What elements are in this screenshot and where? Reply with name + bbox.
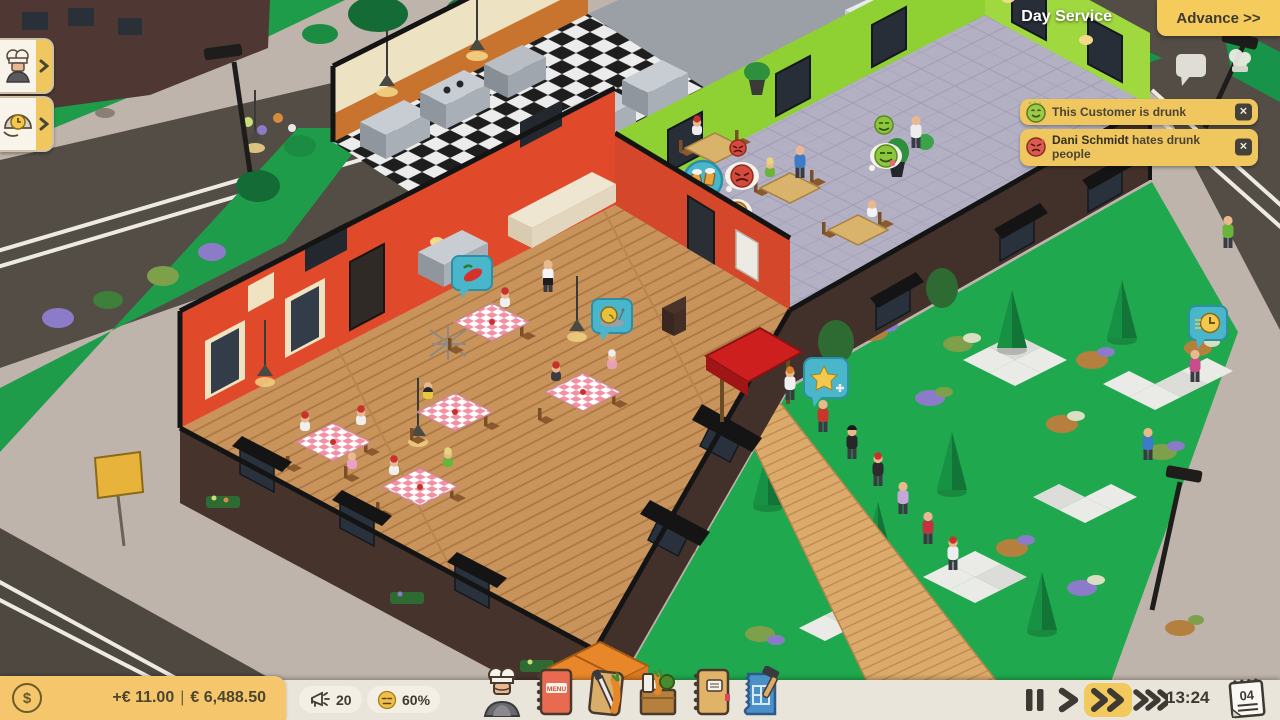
notebook-icon bbox=[687, 666, 733, 718]
play-speed-button[interactable] bbox=[1062, 691, 1075, 709]
day-calendar[interactable]: 04 bbox=[1224, 674, 1268, 720]
fastest-speed-button[interactable] bbox=[1136, 692, 1168, 708]
notification-text: Dani Schmidt hates drunk people bbox=[1052, 133, 1232, 162]
marketing-stat[interactable]: 20 bbox=[299, 686, 362, 713]
phase-label: Day Service bbox=[1021, 8, 1112, 26]
speed-controls bbox=[1016, 680, 1168, 720]
menu-book-button[interactable]: MENU bbox=[531, 666, 577, 718]
fast-speed-button[interactable] bbox=[1084, 683, 1132, 717]
satisfaction-value: 60% bbox=[402, 692, 430, 708]
customer-name: Dani Schmidt bbox=[1052, 133, 1129, 147]
drunk-angry-icon bbox=[1025, 136, 1047, 158]
megaphone-icon bbox=[309, 691, 331, 709]
menu-buttons: MENU bbox=[479, 666, 785, 718]
dollar-coin-icon: $ bbox=[12, 683, 42, 713]
money-panel[interactable]: $ +€ 11.00|€ 6,488.50 bbox=[0, 676, 286, 720]
notification-list: This Customer is drunk ✕ Dani Schmidt ha… bbox=[1020, 99, 1258, 166]
drunk-smiley-icon bbox=[1025, 101, 1047, 123]
orders-panel-button[interactable] bbox=[0, 96, 54, 152]
chef-icon bbox=[0, 40, 36, 92]
chevron-right-icon bbox=[36, 40, 52, 92]
chevron-right-icon bbox=[36, 98, 52, 150]
pause-button[interactable] bbox=[1026, 689, 1044, 711]
staff-menu-button[interactable] bbox=[479, 666, 525, 718]
ledger-button[interactable] bbox=[687, 666, 733, 718]
notification[interactable]: Dani Schmidt hates drunk people ✕ bbox=[1020, 129, 1258, 166]
ingredients-button[interactable] bbox=[635, 666, 681, 718]
notification-text: This Customer is drunk bbox=[1052, 105, 1186, 119]
build-button[interactable] bbox=[739, 666, 785, 718]
staff-panel-button[interactable] bbox=[0, 38, 54, 94]
blueprint-hammer-icon bbox=[739, 666, 785, 718]
cloche-clock-icon bbox=[0, 98, 36, 150]
notification-close-button[interactable]: ✕ bbox=[1235, 104, 1252, 121]
advance-button[interactable]: Advance >> bbox=[1157, 0, 1280, 36]
recipes-button[interactable] bbox=[583, 666, 629, 718]
marketing-value: 20 bbox=[336, 692, 352, 708]
money-balance: € 6,488.50 bbox=[190, 689, 266, 706]
manhole bbox=[95, 108, 115, 118]
svg-text:04: 04 bbox=[1239, 687, 1255, 703]
notification[interactable]: This Customer is drunk ✕ bbox=[1020, 99, 1258, 125]
svg-text:MENU: MENU bbox=[547, 686, 566, 693]
clock-label: 13:24 bbox=[1166, 688, 1222, 708]
cutting-board-knife-carrot-icon bbox=[583, 666, 629, 718]
game-screen: { "meta": { "app_context": "restaurant m… bbox=[0, 0, 1280, 720]
menu-book-icon: MENU bbox=[531, 666, 577, 718]
money-text: +€ 11.00|€ 6,488.50 bbox=[112, 689, 266, 707]
notification-close-button[interactable]: ✕ bbox=[1235, 139, 1252, 156]
chef-staff-icon bbox=[479, 666, 525, 718]
satisfaction-stat[interactable]: 60% bbox=[367, 686, 440, 713]
money-delta: +€ 11.00 bbox=[112, 689, 174, 706]
vegetable-crate-icon bbox=[635, 666, 681, 718]
neutral-face-icon bbox=[377, 690, 397, 710]
bottom-bar: $ +€ 11.00|€ 6,488.50 20 60% bbox=[0, 680, 1280, 720]
